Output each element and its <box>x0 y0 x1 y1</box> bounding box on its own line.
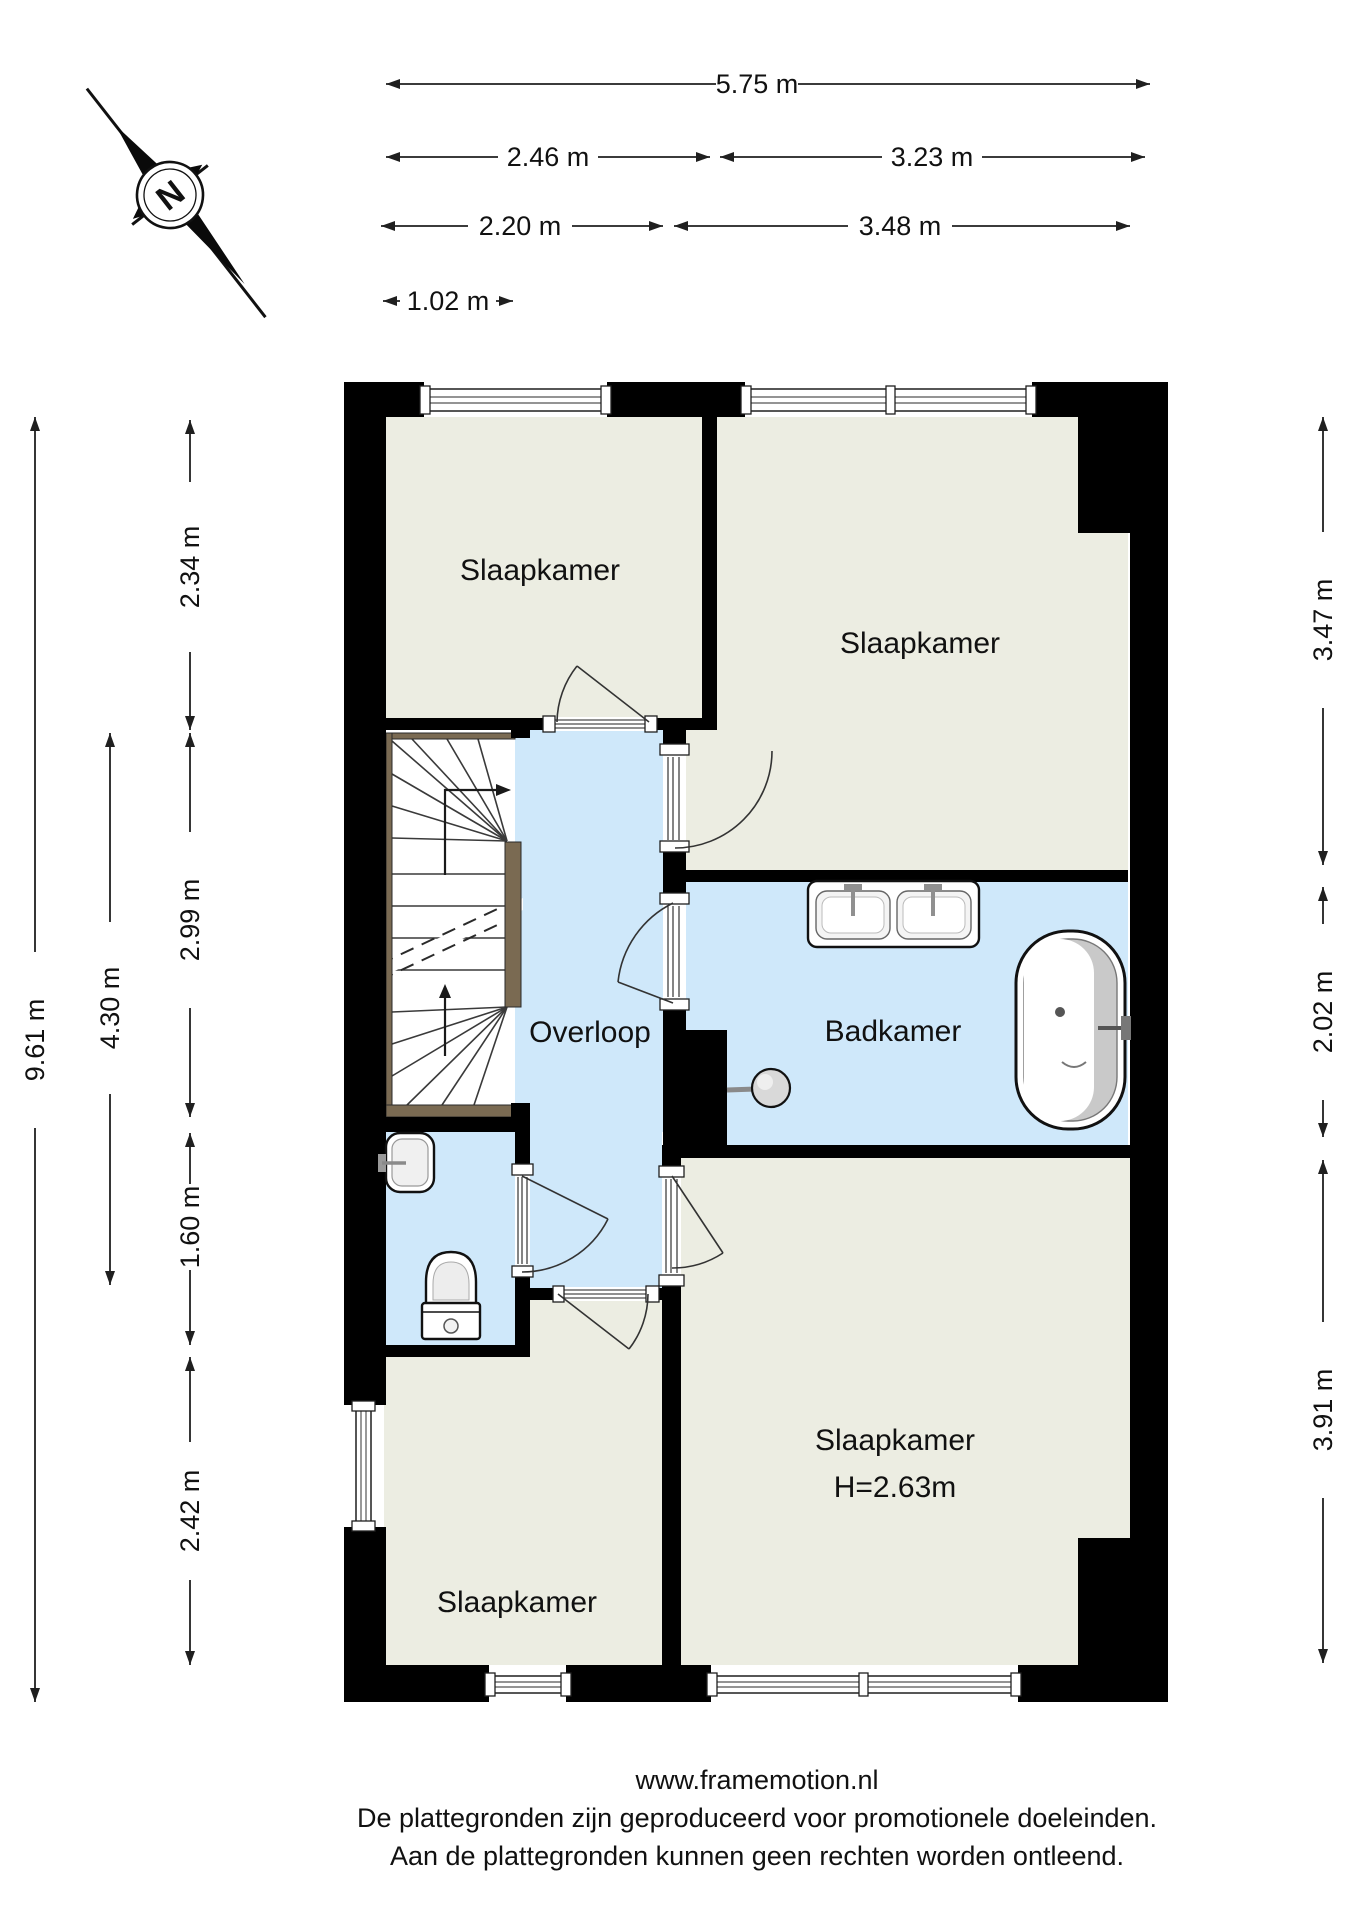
bathroom-double-sink <box>808 881 979 947</box>
dimension-label: 5.75 m <box>716 69 799 99</box>
dimension-left-seg1: 2.34 m <box>175 420 205 730</box>
window-left-wall <box>352 1401 375 1531</box>
bedroom-bottom-left-floor-north <box>530 1300 662 1357</box>
dimension-top-row3-left: 2.20 m <box>381 211 663 241</box>
dimension-label: 3.47 m <box>1308 579 1338 662</box>
dimension-right-seg2: 2.02 m <box>1308 887 1338 1137</box>
dimension-label: 1.02 m <box>407 286 490 316</box>
wall-stair-stub-top <box>511 718 530 738</box>
bathtub-drain <box>1055 1007 1065 1017</box>
stair-stringer-top <box>386 733 515 739</box>
dimension-label: 9.61 m <box>20 999 50 1082</box>
landing-floor-south <box>530 1132 662 1288</box>
toilet-flush-button <box>444 1319 458 1333</box>
wall-right-main <box>1130 382 1168 1702</box>
dimension-left-seg4: 2.42 m <box>175 1357 205 1665</box>
dimension-top-row2-right: 3.23 m <box>720 142 1145 172</box>
floorplan-canvas: N 5.75 m 2.46 m 3.23 m 2.20 m 3.48 m 1.0… <box>0 0 1358 1920</box>
footer-disclaimer-line1: De plattegronden zijn geproduceerd voor … <box>357 1803 1157 1833</box>
dimension-left-landing: 4.30 m <box>95 733 125 1285</box>
wall-bottom-pier <box>566 1665 711 1702</box>
bedroom-bottom-right-floor-south <box>681 1538 1078 1665</box>
dimension-top-row3-right: 3.48 m <box>674 211 1130 241</box>
dimension-label: 1.60 m <box>175 1186 205 1269</box>
room-label-bedroom-bottom-right: Slaapkamer <box>815 1424 975 1457</box>
wall-stair-stub-bottom <box>511 1103 530 1132</box>
dimension-label: 2.34 m <box>175 526 205 609</box>
wall-bottom-left <box>344 1665 489 1702</box>
wall-bathroom-south <box>663 1145 1130 1158</box>
wall-top-pier <box>607 382 745 417</box>
toilet-bowl-inner <box>433 1262 469 1300</box>
dimension-top-total: 5.75 m <box>386 69 1150 99</box>
wall-toilet-south <box>344 1345 530 1357</box>
wall-bottom-right-corner <box>1018 1665 1168 1702</box>
toilet-room-sink <box>378 1133 434 1192</box>
wall-toilet-north <box>344 1117 530 1132</box>
wall-landing-south-a <box>530 1288 555 1300</box>
wall-bedroom-tl-south-b <box>655 718 717 730</box>
room-label-landing: Overloop <box>529 1016 651 1049</box>
window-bottom-large <box>707 1673 1021 1696</box>
wall-between-bottom-bedrooms <box>662 1300 681 1665</box>
wall-between-top-bedrooms <box>702 417 717 718</box>
dimension-right-seg1: 3.47 m <box>1308 417 1338 865</box>
dimension-label: 3.23 m <box>891 142 974 172</box>
window-top-right <box>741 386 1036 414</box>
staircase <box>380 733 525 1117</box>
dimension-stair-width: 1.02 m <box>383 286 513 316</box>
landing-floor <box>515 730 663 1132</box>
dimension-label: 2.20 m <box>479 211 562 241</box>
stair-center-newel <box>505 842 521 1007</box>
wall-toilet-east-b <box>515 1273 530 1345</box>
dimension-label: 2.99 m <box>175 879 205 962</box>
dimension-left-total: 9.61 m <box>20 417 50 1702</box>
window-bottom-small <box>485 1673 571 1696</box>
wall-landing-east-b <box>663 848 686 897</box>
wall-right-notch-top <box>1078 417 1168 533</box>
dimension-left-seg2: 2.99 m <box>175 733 205 1117</box>
stair-stringer-left <box>386 733 392 1117</box>
dimension-label: 2.02 m <box>1308 971 1338 1054</box>
stair-stringer-bottom <box>386 1105 515 1117</box>
footer-website: www.framemotion.nl <box>634 1765 878 1795</box>
wall-shower-block <box>663 1030 727 1145</box>
dimension-label: 3.48 m <box>859 211 942 241</box>
dimension-label: 4.30 m <box>95 967 125 1050</box>
bedroom-top-right-floor-east <box>1078 533 1128 870</box>
wall-left-upper <box>344 382 386 1405</box>
dimension-label: 2.46 m <box>507 142 590 172</box>
window-top-left <box>420 386 611 414</box>
room-label-bedroom-top-left: Slaapkamer <box>460 554 620 587</box>
room-label-bedroom-top-right: Slaapkamer <box>840 627 1000 660</box>
dimension-top-row2-left: 2.46 m <box>386 142 710 172</box>
dimension-label: 3.91 m <box>1308 1369 1338 1452</box>
room-label-bedroom-bottom-left: Slaapkamer <box>437 1586 597 1619</box>
dimension-right-seg3: 3.91 m <box>1308 1160 1338 1663</box>
compass-rose: N <box>49 59 303 347</box>
dimension-left-seg3: 1.60 m <box>175 1133 205 1345</box>
room-label-bathroom: Badkamer <box>825 1015 962 1048</box>
wall-toilet-east-a <box>515 1132 530 1168</box>
dimension-label: 2.42 m <box>175 1470 205 1553</box>
bathtub-inner-highlight <box>1024 939 1094 1121</box>
bedroom-top-right-floor-west <box>686 730 717 870</box>
footer-disclaimer-line2: Aan de plattegronden kunnen geen rechten… <box>390 1841 1124 1871</box>
bathtub <box>1016 931 1131 1129</box>
toilet <box>422 1252 480 1339</box>
room-label-bedroom-bottom-right-height: H=2.63m <box>834 1471 957 1504</box>
